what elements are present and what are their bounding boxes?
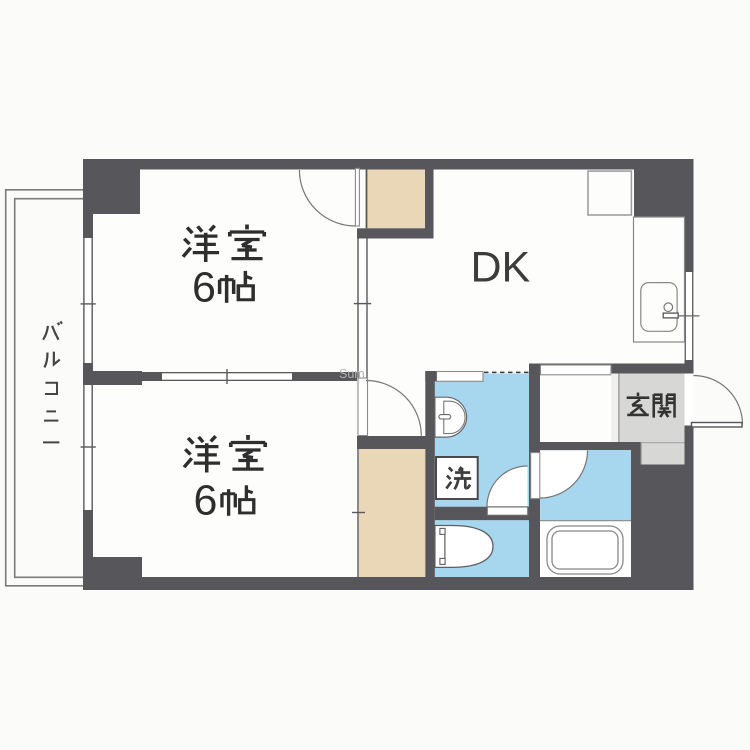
svg-text:6: 6 <box>194 476 218 524</box>
svg-text:DK: DK <box>471 244 531 292</box>
svg-text:6: 6 <box>192 263 216 311</box>
svg-text:Sum: Sum <box>339 367 365 381</box>
